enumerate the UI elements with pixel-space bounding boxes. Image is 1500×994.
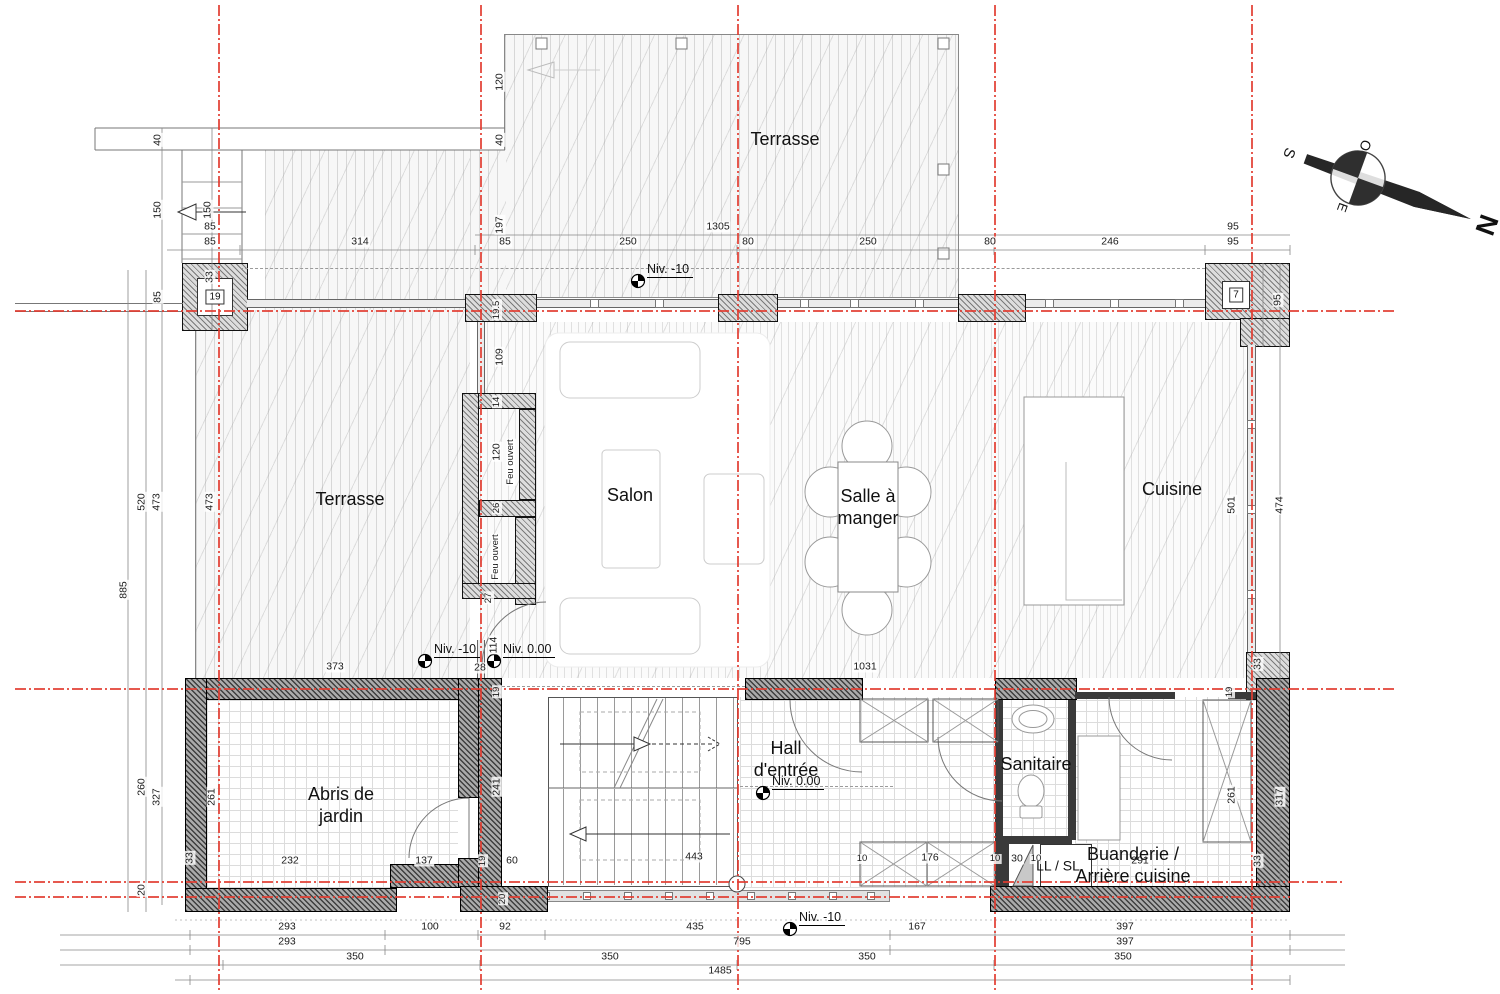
room-label: Sanitaire [1000,754,1071,776]
dim-label: 350 [600,951,620,962]
dim-label: 261 [206,787,217,807]
dim-label: 80 [741,236,755,247]
dim-label: 20 [136,883,147,897]
dim-label: 19 [492,686,502,699]
dim-label: 40 [152,133,163,147]
level-label: Niv. -10 [434,642,480,658]
dim-label: 314 [350,236,370,247]
dim-label: 150 [202,200,213,220]
column-ref-box: 19 [205,290,224,305]
dim-label: 397 [1115,921,1135,932]
floor-plan-canvas: N S E O 85853148525013058025080246959540… [0,0,1500,994]
dim-label: 14 [492,396,502,409]
dim-label: 95 [1272,293,1283,307]
dim-label: 232 [280,855,300,866]
dim-label: 80 [983,236,997,247]
dim-label: 40 [494,133,505,147]
dim-label: 241 [491,777,502,797]
dim-label: 109 [494,347,505,367]
dim-label: 19.5 [492,300,502,321]
dim-label: 885 [118,580,129,600]
dim-label: 26 [492,502,502,515]
dim-label: 250 [858,236,878,247]
dim-label: 137 [414,855,434,866]
dim-label: 120 [494,72,505,92]
room-label: Salle àmanger [837,486,898,530]
dim-label: 795 [732,936,752,947]
room-label: Terrasse [750,129,819,151]
dim-label: 350 [857,951,877,962]
dim-label: Feu ouvert [506,438,516,485]
dim-label: 95 [1226,221,1240,232]
dim-label: 20 [498,893,508,906]
dim-label: 19 [1225,686,1235,699]
dim-label: 246 [1100,236,1120,247]
dim-label: 100 [420,921,440,932]
dim-label: 33 [204,270,215,284]
dim-label: 95 [1226,236,1240,247]
dim-label: 474 [1274,495,1285,515]
dim-label: 473 [151,492,162,512]
dim-label: 293 [277,921,297,932]
dim-label: 501 [1226,495,1237,515]
dim-label: 27 [484,592,494,605]
dim-label: 443 [684,851,704,862]
dim-label: 350 [1113,951,1133,962]
dim-label: 85 [203,236,217,247]
dim-label: 10 [856,854,869,864]
dim-label: 293 [277,936,297,947]
room-label: Cuisine [1142,479,1202,501]
dim-label: 10 [989,854,1002,864]
dim-label: 473 [204,492,215,512]
room-label: Buanderie /Arrière cuisine [1075,844,1190,888]
dim-label: 1485 [707,965,732,976]
dim-label: 327 [151,787,162,807]
dim-label: 33 [1252,657,1263,671]
room-label: Salon [607,485,653,507]
dim-label: 397 [1115,936,1135,947]
dim-label: 1305 [705,221,730,232]
dim-label: 28 [473,662,487,673]
dim-label: 373 [325,661,345,672]
dim-label: 435 [685,921,705,932]
dim-label: 350 [345,951,365,962]
dim-label: 167 [907,921,927,932]
dim-label: 176 [920,852,940,863]
dim-label: 33 [1252,854,1263,868]
dim-label: 260 [136,777,147,797]
dim-label: 114 [488,636,499,655]
dim-label: 317 [1274,787,1285,807]
room-label: Abris dejardin [308,784,374,828]
dim-label: 150 [152,200,163,220]
dim-label: 85 [203,221,217,232]
dim-label: 250 [618,236,638,247]
dim-label: 520 [136,492,147,512]
dim-label: 85 [498,236,512,247]
dim-label: 60 [505,855,519,866]
level-label: Niv. -10 [799,910,845,926]
dim-label: 1031 [852,661,877,672]
column-ref-box: 7 [1229,288,1243,303]
dim-label: 261 [1226,785,1237,805]
room-label: LL / SL [1036,857,1080,874]
dim-label: 92 [498,921,512,932]
dim-label: 85 [152,290,163,304]
dim-label: 197 [494,215,505,235]
room-label: Terrasse [315,489,384,511]
labels-layer: 8585314852501305802508024695954040120150… [0,0,1500,994]
dim-label: 19 [478,855,488,868]
dim-label: 30 [1010,853,1024,864]
level-label: Niv. -10 [647,262,693,278]
dim-label: 120 [491,442,502,462]
dim-label: Feu ouvert [491,533,501,580]
level-label: Niv. 0.00 [772,774,824,790]
level-label: Niv. 0.00 [503,642,555,658]
dim-label: 33 [184,851,195,865]
